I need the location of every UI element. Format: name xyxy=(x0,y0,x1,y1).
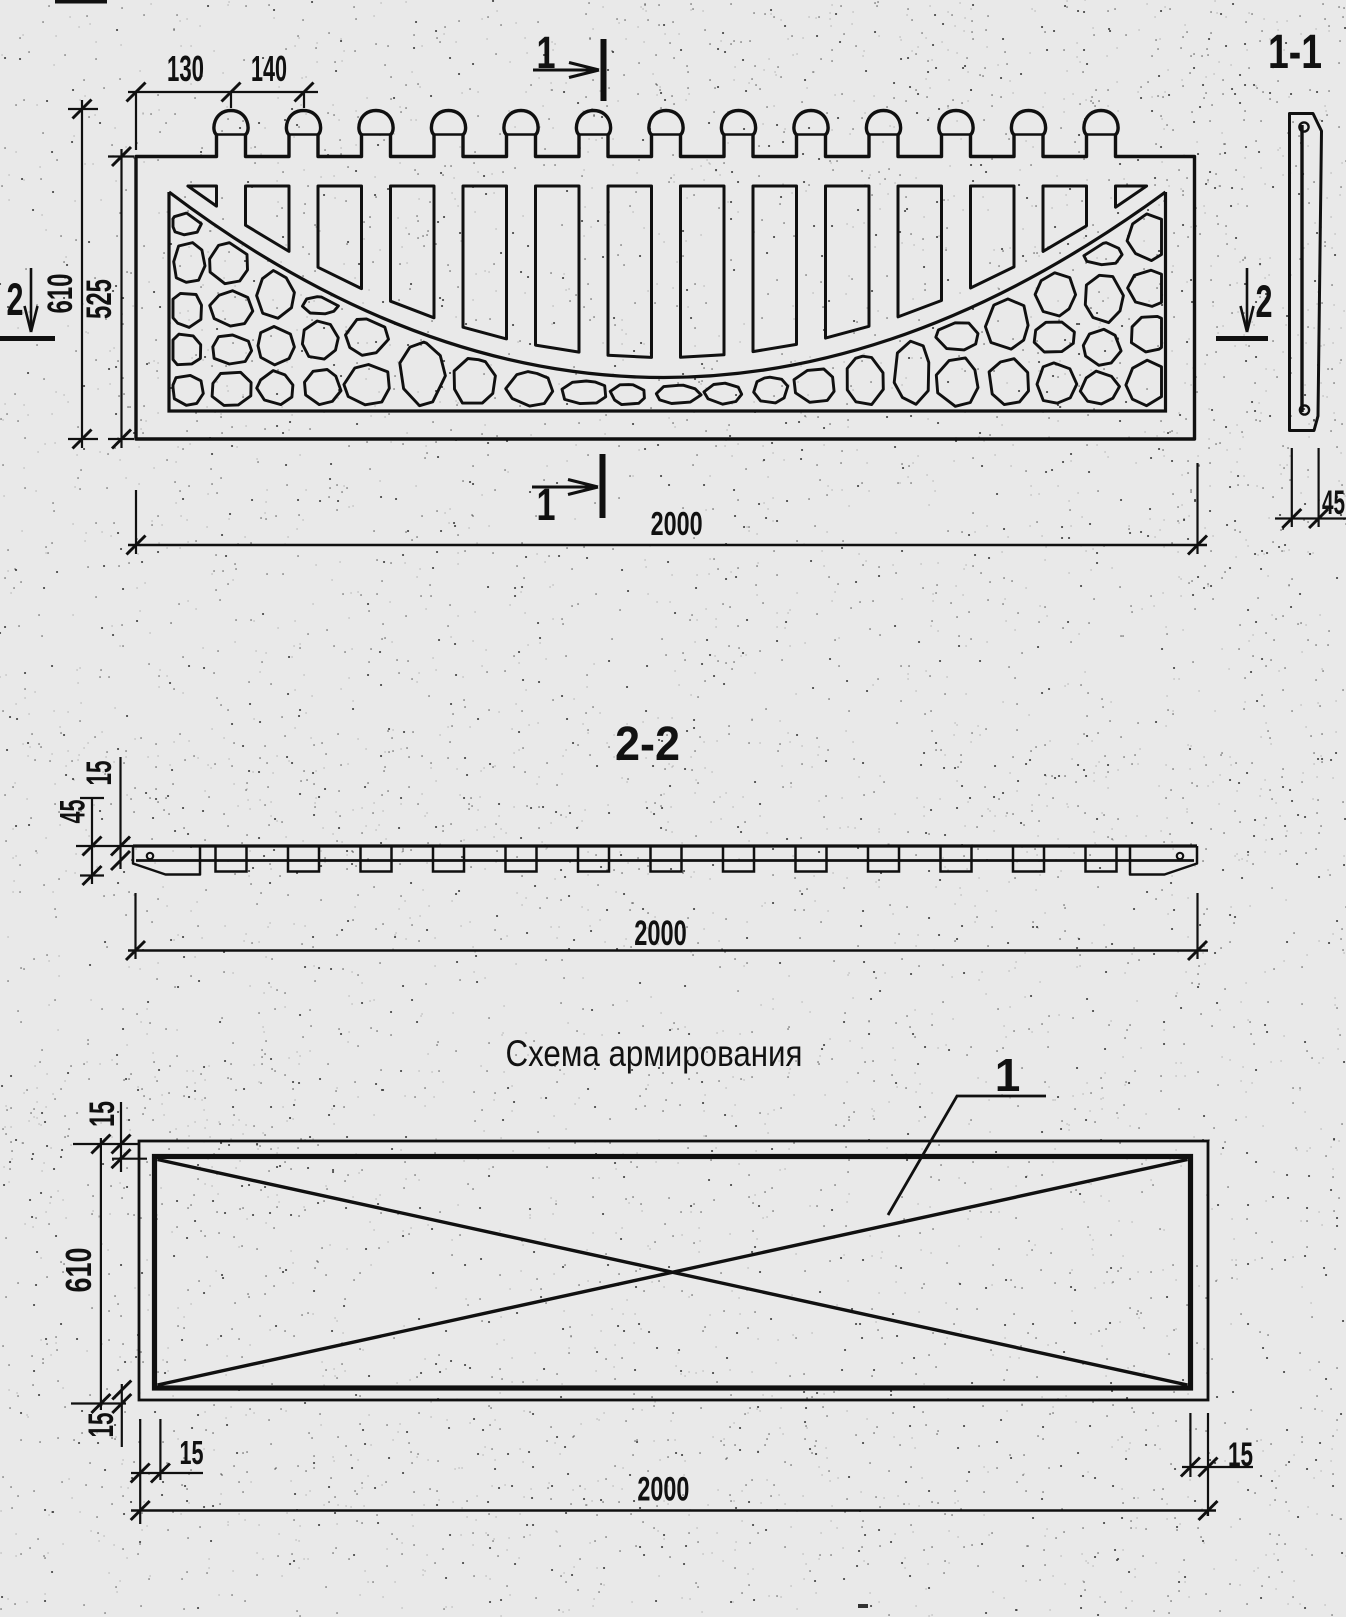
svg-text:140: 140 xyxy=(251,48,287,89)
svg-text:2000: 2000 xyxy=(651,505,703,542)
svg-text:610: 610 xyxy=(41,274,80,314)
svg-text:130: 130 xyxy=(167,48,204,89)
svg-text:45: 45 xyxy=(54,800,93,824)
svg-text:15: 15 xyxy=(1228,1436,1253,1474)
svg-text:610: 610 xyxy=(58,1248,99,1293)
svg-text:2: 2 xyxy=(7,274,24,325)
svg-text:15: 15 xyxy=(80,761,119,786)
svg-text:1: 1 xyxy=(537,479,556,530)
svg-text:1: 1 xyxy=(537,27,556,78)
svg-text:525: 525 xyxy=(80,279,119,319)
svg-text:15: 15 xyxy=(180,1434,204,1471)
svg-text:2: 2 xyxy=(1256,276,1273,327)
svg-text:2000: 2000 xyxy=(634,914,687,953)
svg-text:1: 1 xyxy=(995,1049,1021,1101)
svg-text:2-2: 2-2 xyxy=(615,718,680,771)
svg-text:15: 15 xyxy=(83,1101,122,1127)
svg-text:15: 15 xyxy=(82,1413,121,1438)
svg-text:Схема армирования: Схема армирования xyxy=(506,1033,803,1074)
svg-text:2000: 2000 xyxy=(637,1471,689,1509)
svg-text:1-1: 1-1 xyxy=(1268,26,1322,79)
svg-text:45: 45 xyxy=(1322,484,1345,522)
